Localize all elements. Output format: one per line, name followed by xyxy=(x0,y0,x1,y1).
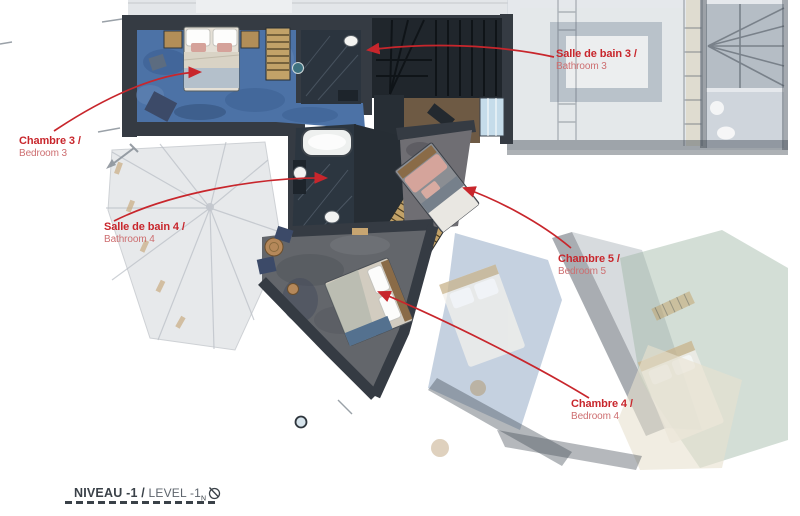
label-subtitle: Bathroom 3 xyxy=(556,61,637,73)
north-compass-icon xyxy=(207,485,222,500)
label-salle-de-bain-3: Salle de bain 3 / Bathroom 3 xyxy=(556,48,637,74)
wood-stool xyxy=(288,284,299,295)
label-chambre-4: Chambre 4 / Bedroom 4 xyxy=(571,398,633,424)
wardrobe-slats xyxy=(266,28,290,80)
label-title: Chambre 4 / xyxy=(571,398,633,411)
faded-upper-plan xyxy=(507,0,788,155)
sink-icon xyxy=(293,63,304,74)
label-subtitle: Bathroom 4 xyxy=(104,234,185,246)
label-subtitle: Bedroom 4 xyxy=(571,411,633,423)
toilet-icon xyxy=(344,36,358,47)
label-chambre-3: Chambre 3 / Bedroom 3 xyxy=(19,135,81,161)
faded-upper-ledge xyxy=(128,0,508,15)
label-subtitle: Bedroom 5 xyxy=(558,266,620,278)
bedroom-5-floor xyxy=(394,120,479,233)
toilet-icon xyxy=(325,211,340,223)
wood-table xyxy=(265,238,283,256)
label-salle-de-bain-4: Salle de bain 4 / Bathroom 4 xyxy=(104,221,185,247)
bathroom-3-floor xyxy=(293,30,362,104)
floor-plan-page: { "annotations": { "chambre3": { "title"… xyxy=(0,0,800,516)
label-title: Chambre 5 / xyxy=(558,253,620,266)
level-title-en: LEVEL -1 xyxy=(145,486,201,500)
label-title: Salle de bain 4 / xyxy=(104,221,185,234)
skylight xyxy=(480,98,504,136)
label-subtitle: Bedroom 3 xyxy=(19,148,81,160)
door-threshold xyxy=(352,228,368,235)
level-title: NIVEAU -1 / LEVEL -1N xyxy=(74,485,222,503)
column-marker xyxy=(296,417,307,428)
bedroom-4-floor xyxy=(257,219,434,396)
level-underline xyxy=(65,501,215,504)
floor-plan-svg xyxy=(0,0,800,516)
label-title: Chambre 3 / xyxy=(19,135,81,148)
label-chambre-5: Chambre 5 / Bedroom 5 xyxy=(558,253,620,279)
level-title-fr: NIVEAU -1 / xyxy=(74,486,145,500)
label-title: Salle de bain 3 / xyxy=(556,48,637,61)
